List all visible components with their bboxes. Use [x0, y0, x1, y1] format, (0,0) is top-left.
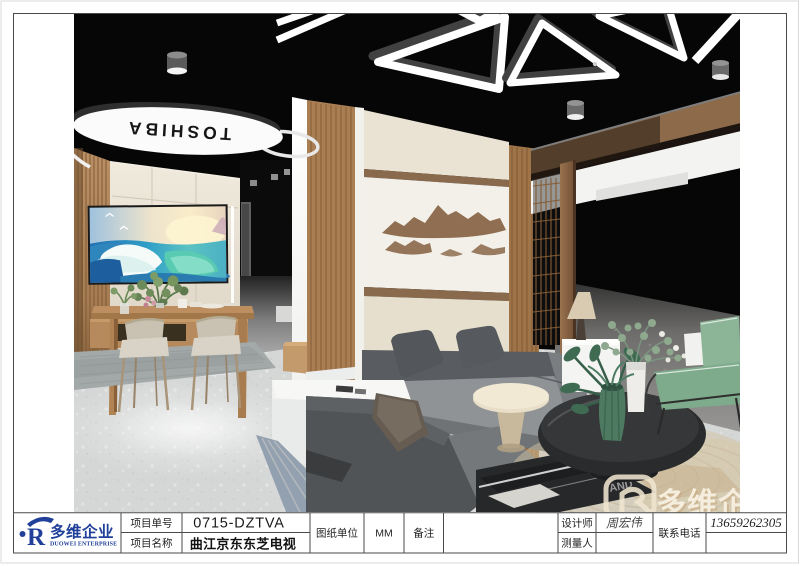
svg-text:测量人: 测量人	[561, 537, 593, 550]
svg-text:项目单号: 项目单号	[131, 518, 173, 530]
svg-text:多维企业: 多维企业	[50, 522, 114, 541]
svg-text:设计师: 设计师	[561, 517, 593, 530]
svg-text:DUOWEI ENTERPRISE: DUOWEI ENTERPRISE	[50, 542, 117, 548]
svg-text:图纸单位: 图纸单位	[316, 527, 358, 540]
svg-text:备注: 备注	[413, 527, 434, 540]
svg-text:周宏伟: 周宏伟	[606, 515, 644, 530]
svg-text:项目名称: 项目名称	[131, 537, 173, 550]
svg-text:13659262305: 13659262305	[710, 515, 782, 530]
svg-text:MM: MM	[375, 528, 393, 540]
svg-text:R: R	[27, 524, 46, 551]
svg-text:联系电话: 联系电话	[659, 527, 701, 540]
svg-text:曲江京东东芝电视: 曲江京东东芝电视	[190, 537, 296, 552]
svg-text:0715-DZTVA: 0715-DZTVA	[193, 516, 285, 532]
